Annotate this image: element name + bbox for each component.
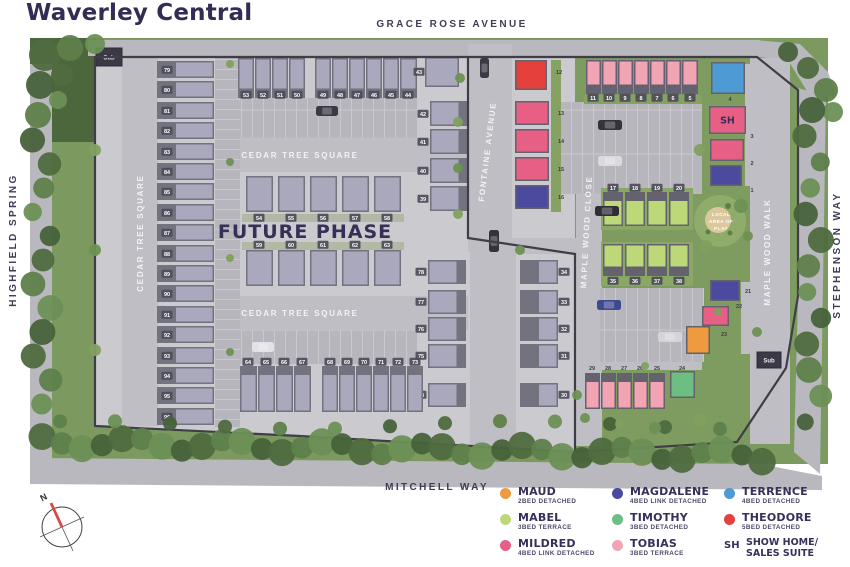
plot-93[interactable]: 93 xyxy=(157,347,214,364)
tree xyxy=(793,202,817,226)
site-plan-map: LOCAL AREA OF PLAY 12131415161110987654S… xyxy=(0,0,850,567)
plot-number: 86 xyxy=(164,211,170,217)
legend-name: MABEL xyxy=(518,512,572,523)
tree xyxy=(693,413,707,427)
substation: Sub xyxy=(757,352,781,368)
car xyxy=(595,206,619,216)
tree xyxy=(438,416,452,430)
tree xyxy=(668,445,695,472)
legend-name: MAGDALENE xyxy=(630,486,709,497)
plot-number: 28 xyxy=(605,366,611,372)
street-label-stephenson: STEPHENSON WAY xyxy=(832,191,843,318)
tree xyxy=(572,390,582,400)
plot-number: 33 xyxy=(561,300,567,306)
tree xyxy=(700,240,712,252)
plot-number: 50 xyxy=(294,93,300,99)
car xyxy=(658,332,682,342)
plot-number: 87 xyxy=(164,231,170,237)
plot-51[interactable]: 51 xyxy=(272,58,288,99)
legend-swatch xyxy=(612,488,623,499)
tree xyxy=(799,97,825,123)
legend-desc: 4BED LINK DETACHED xyxy=(518,550,595,557)
tree xyxy=(796,357,822,383)
tree xyxy=(328,422,342,436)
plot-number: 25 xyxy=(654,366,660,372)
plot-number: 72 xyxy=(395,360,401,366)
tree xyxy=(468,442,495,469)
tree xyxy=(108,414,122,428)
plot-number: 94 xyxy=(164,374,171,380)
show-home-marker: SH xyxy=(720,116,735,127)
road-fontaine-south xyxy=(470,252,516,446)
tree xyxy=(743,231,753,241)
tree xyxy=(226,158,234,166)
tree xyxy=(603,417,617,431)
plot-80[interactable]: 80 xyxy=(157,81,214,98)
plot-84[interactable]: 84 xyxy=(157,163,214,180)
plot-number: 49 xyxy=(320,93,326,99)
plot-number: 37 xyxy=(654,279,660,285)
plot-number: 47 xyxy=(354,93,360,99)
road-grace-rose xyxy=(88,40,760,56)
plot-number: 3 xyxy=(750,134,753,140)
plot-89[interactable]: 89 xyxy=(157,265,214,282)
plot-number: 92 xyxy=(164,333,170,339)
plot-number: 42 xyxy=(420,112,426,118)
tree xyxy=(51,64,73,86)
plot-number: 36 xyxy=(632,279,638,285)
plot-45[interactable]: 45 xyxy=(383,58,399,99)
tree xyxy=(797,414,814,431)
tree xyxy=(778,42,798,62)
plot-number: 65 xyxy=(263,360,269,366)
plot-82[interactable]: 82 xyxy=(157,122,214,139)
plot-number: 23 xyxy=(721,332,727,338)
legend-name: TIMOTHY xyxy=(630,512,688,523)
legend-item-terrence: TERRENCE4BED DETACHED xyxy=(724,486,848,512)
tree xyxy=(811,308,831,328)
legend-swatch xyxy=(500,488,511,499)
legend-item-maud: MAUD2BED DETACHED xyxy=(500,486,612,512)
legend-item-tobias: TOBIAS3BED TERRACE xyxy=(612,538,724,564)
tree xyxy=(89,344,101,356)
tree xyxy=(798,283,816,301)
parking-lot-north xyxy=(558,102,702,194)
tree xyxy=(493,414,507,428)
plot-number: 46 xyxy=(371,93,377,99)
plot-44[interactable]: 44 xyxy=(400,58,417,99)
car xyxy=(480,58,489,78)
plot-number: 61 xyxy=(320,243,326,249)
street-label-maple-walk: MAPLE WOOD WALK xyxy=(763,198,772,305)
legend-name: SALES SUITE xyxy=(746,549,818,560)
plot-number: 22 xyxy=(736,304,742,310)
tree xyxy=(85,34,105,54)
tree xyxy=(694,144,706,156)
plot-number: 12 xyxy=(556,70,562,76)
plot-number: 91 xyxy=(164,313,170,319)
plot-number: 17 xyxy=(610,186,616,192)
plot-number: 1 xyxy=(750,188,753,194)
plot-number: 79 xyxy=(164,68,170,74)
tree xyxy=(628,438,655,465)
tree xyxy=(268,439,295,466)
plot-number: 8 xyxy=(639,96,642,102)
plot-number: 66 xyxy=(281,360,287,366)
plot-number: 29 xyxy=(589,366,595,372)
plot-number: 88 xyxy=(164,252,170,258)
plot-number: 71 xyxy=(378,360,384,366)
tree xyxy=(515,245,525,255)
legend-desc: 4BED LINK DETACHED xyxy=(630,498,709,505)
plot-number: 7 xyxy=(655,96,658,102)
legend-desc: 3BED TERRACE xyxy=(518,524,572,531)
legend-name: MILDRED xyxy=(518,538,595,549)
legend-swatch xyxy=(500,540,511,551)
plot-number: 81 xyxy=(164,109,170,115)
plot-number: 59 xyxy=(256,243,262,249)
car xyxy=(252,342,274,352)
tree xyxy=(794,332,819,357)
page-title: Waverley Central xyxy=(26,0,252,26)
compass-north-label: N xyxy=(38,491,48,503)
car xyxy=(597,300,621,310)
tree xyxy=(40,226,60,246)
tree xyxy=(163,417,177,431)
play-area-label: LOCAL xyxy=(712,212,731,218)
legend-name: MAUD xyxy=(518,486,576,497)
street-label-cedar-bottom: CEDAR TREE SQUARE xyxy=(241,309,358,318)
tree xyxy=(649,422,661,434)
plot-46[interactable]: 46 xyxy=(366,58,382,99)
legend-name: TERRENCE xyxy=(742,486,808,497)
tree xyxy=(388,435,415,462)
plot-number: 9 xyxy=(623,96,626,102)
plot-number: 10 xyxy=(606,96,612,102)
plot-number: 48 xyxy=(337,93,343,99)
plot-81[interactable]: 81 xyxy=(157,102,214,119)
svg-text:PLAY: PLAY xyxy=(714,226,728,232)
plot-number: 67 xyxy=(299,360,305,366)
tree xyxy=(453,209,463,219)
tree xyxy=(32,249,55,272)
plot-number: 60 xyxy=(288,243,294,249)
car xyxy=(598,120,622,130)
plot-85[interactable]: 85 xyxy=(157,183,214,200)
legend-desc: 3BED DETACHED xyxy=(630,524,688,531)
tree xyxy=(455,73,465,83)
street-label-highfield: HIGHFIELD SPRING xyxy=(8,173,19,306)
show-home-symbol: SH xyxy=(724,540,739,551)
svg-text:AREA OF: AREA OF xyxy=(709,219,733,225)
legend-item-show-home: SHSHOW HOME/SALES SUITE xyxy=(724,538,848,564)
tree xyxy=(21,272,46,297)
plot-number: 73 xyxy=(412,360,418,366)
plot-number: 78 xyxy=(418,270,424,276)
legend-desc: 5BED DETACHED xyxy=(742,524,812,531)
legend-swatch xyxy=(724,488,735,499)
tree xyxy=(580,413,590,423)
tree xyxy=(226,60,234,68)
tree xyxy=(148,433,175,460)
tree xyxy=(89,144,101,156)
plot-number: 45 xyxy=(388,93,394,99)
tree xyxy=(811,153,830,172)
tree xyxy=(29,319,55,345)
site-plan-page: LOCAL AREA OF PLAY 12131415161110987654S… xyxy=(0,0,850,567)
tree xyxy=(713,422,727,436)
plot-53[interactable]: 53 xyxy=(238,58,254,99)
car xyxy=(316,106,338,116)
plot-49[interactable]: 49 xyxy=(315,58,331,99)
car xyxy=(598,156,622,166)
tree xyxy=(226,348,234,356)
plot-number: 82 xyxy=(164,129,170,135)
tree xyxy=(33,177,54,198)
plot-92[interactable]: 92 xyxy=(157,326,214,343)
tree xyxy=(226,254,234,262)
plot-number: 13 xyxy=(558,111,564,117)
plot-79[interactable]: 79 xyxy=(157,61,214,78)
legend-item-mabel: MABEL3BED TERRACE xyxy=(500,512,612,538)
plot-number: 34 xyxy=(561,270,568,276)
plot-number: 52 xyxy=(260,93,266,99)
tree xyxy=(708,436,736,464)
plot-52[interactable]: 52 xyxy=(255,58,271,99)
plot-86[interactable]: 86 xyxy=(157,204,214,221)
tree xyxy=(508,432,535,459)
tree xyxy=(39,368,62,391)
plot-number: 15 xyxy=(558,167,564,173)
future-phase-label: FUTURE PHASE xyxy=(218,221,392,243)
plot-94[interactable]: 94 xyxy=(157,367,214,384)
plot-number: 70 xyxy=(361,360,367,366)
plot-number: 90 xyxy=(164,292,170,298)
plot-number: 14 xyxy=(558,139,565,145)
tree xyxy=(57,35,83,61)
plot-number: 30 xyxy=(561,393,567,399)
plot-number: 76 xyxy=(418,327,424,333)
tree xyxy=(752,327,762,337)
plot-number: 84 xyxy=(164,170,171,176)
plot-number: 27 xyxy=(621,366,627,372)
plot-number: 43 xyxy=(416,70,422,76)
tree xyxy=(615,419,625,429)
legend-swatch xyxy=(612,514,623,525)
plot-number: 19 xyxy=(654,186,660,192)
street-label-cedar-top: CEDAR TREE SQUARE xyxy=(241,151,358,160)
plot-number: 63 xyxy=(384,243,390,249)
legend-swatch xyxy=(612,540,623,551)
plot-number: 16 xyxy=(558,195,564,201)
tree xyxy=(714,308,722,316)
tree xyxy=(809,385,832,408)
plot-number: 89 xyxy=(164,272,170,278)
plot-91[interactable]: 91 xyxy=(157,306,214,323)
plot-number: 41 xyxy=(420,140,426,146)
plot-number: 20 xyxy=(676,186,682,192)
tree xyxy=(797,57,819,79)
tree xyxy=(20,127,45,152)
plot-number: 31 xyxy=(561,354,567,360)
plot-number: 39 xyxy=(420,197,426,203)
plot-number: 83 xyxy=(164,150,170,156)
parking-aisle-top xyxy=(240,98,418,138)
legend-item-mildred: MILDRED4BED LINK DETACHED xyxy=(500,538,612,564)
plot-number: 69 xyxy=(344,360,350,366)
plot-number: 6 xyxy=(671,96,674,102)
plot-number: 11 xyxy=(590,96,596,102)
plot-number: 62 xyxy=(352,243,358,249)
substation-label: Sub xyxy=(763,359,775,365)
plot-50[interactable]: 50 xyxy=(289,58,305,99)
plot-number: 18 xyxy=(632,186,638,192)
legend-desc: 4BED DETACHED xyxy=(742,498,808,505)
tree xyxy=(21,343,46,368)
plot-number: 51 xyxy=(277,93,283,99)
plot-number: 21 xyxy=(745,289,751,295)
street-label-cedar-left: CEDAR TREE SQUARE xyxy=(136,174,145,291)
plot-number: 53 xyxy=(243,93,249,99)
plot-47[interactable]: 47 xyxy=(349,58,365,99)
tree xyxy=(25,102,51,128)
tree xyxy=(37,295,63,321)
plot-number: 32 xyxy=(561,327,567,333)
tree xyxy=(548,415,562,429)
tree xyxy=(641,362,649,370)
tree xyxy=(24,203,42,221)
plot-number: 80 xyxy=(164,88,170,94)
plot-number: 93 xyxy=(164,354,170,360)
legend: MAUD2BED DETACHEDMABEL3BED TERRACEMILDRE… xyxy=(500,486,848,564)
plot-number: 2 xyxy=(750,161,753,167)
tree xyxy=(792,124,816,148)
plot-number: 24 xyxy=(679,366,686,372)
tree xyxy=(808,227,834,253)
plot-90[interactable]: 90 xyxy=(157,285,214,302)
tree xyxy=(53,414,67,428)
tree xyxy=(31,394,52,415)
tree xyxy=(453,163,463,173)
legend-name: THEODORE xyxy=(742,512,812,523)
tree xyxy=(797,254,820,277)
legend-item-timothy: TIMOTHY3BED DETACHED xyxy=(612,512,724,538)
plot-number: 5 xyxy=(688,96,691,102)
tree xyxy=(89,244,101,256)
tree xyxy=(49,91,67,109)
legend-desc: 3BED TERRACE xyxy=(630,550,684,557)
plot-number: 95 xyxy=(164,394,170,400)
tree xyxy=(26,71,54,99)
plot-number: 40 xyxy=(420,169,426,175)
street-label-mitchell: MITCHELL WAY xyxy=(385,482,489,493)
tree xyxy=(273,422,287,436)
plot-number: 38 xyxy=(676,279,682,285)
legend-item-magdalene: MAGDALENE4BED LINK DETACHED xyxy=(612,486,724,512)
plot-number: 35 xyxy=(610,279,616,285)
plot-48[interactable]: 48 xyxy=(332,58,348,99)
plot-number: 77 xyxy=(418,300,424,306)
legend-desc: 2BED DETACHED xyxy=(518,498,576,505)
plot-number: 68 xyxy=(327,360,333,366)
legend-swatch xyxy=(500,514,511,525)
plot-83[interactable]: 83 xyxy=(157,143,214,160)
plot-88[interactable]: 88 xyxy=(157,245,214,262)
tree xyxy=(38,152,61,175)
tree xyxy=(734,199,748,213)
plot-number: 64 xyxy=(245,360,252,366)
legend-swatch xyxy=(724,514,735,525)
legend-item-theodore: THEODORE5BED DETACHED xyxy=(724,512,848,538)
tree xyxy=(453,117,463,127)
tree xyxy=(588,438,615,465)
tree xyxy=(218,420,232,434)
compass: N xyxy=(38,491,84,551)
plot-87[interactable]: 87 xyxy=(157,224,214,241)
tree xyxy=(823,102,843,122)
tree xyxy=(748,448,776,476)
tree xyxy=(383,419,397,433)
street-label-grace-rose: GRACE ROSE AVENUE xyxy=(376,19,527,30)
plot-number: 85 xyxy=(164,190,170,196)
plot-95[interactable]: 95 xyxy=(157,387,214,404)
legend-name: TOBIAS xyxy=(630,538,684,549)
tree xyxy=(801,178,820,197)
plot-number: 44 xyxy=(405,93,412,99)
